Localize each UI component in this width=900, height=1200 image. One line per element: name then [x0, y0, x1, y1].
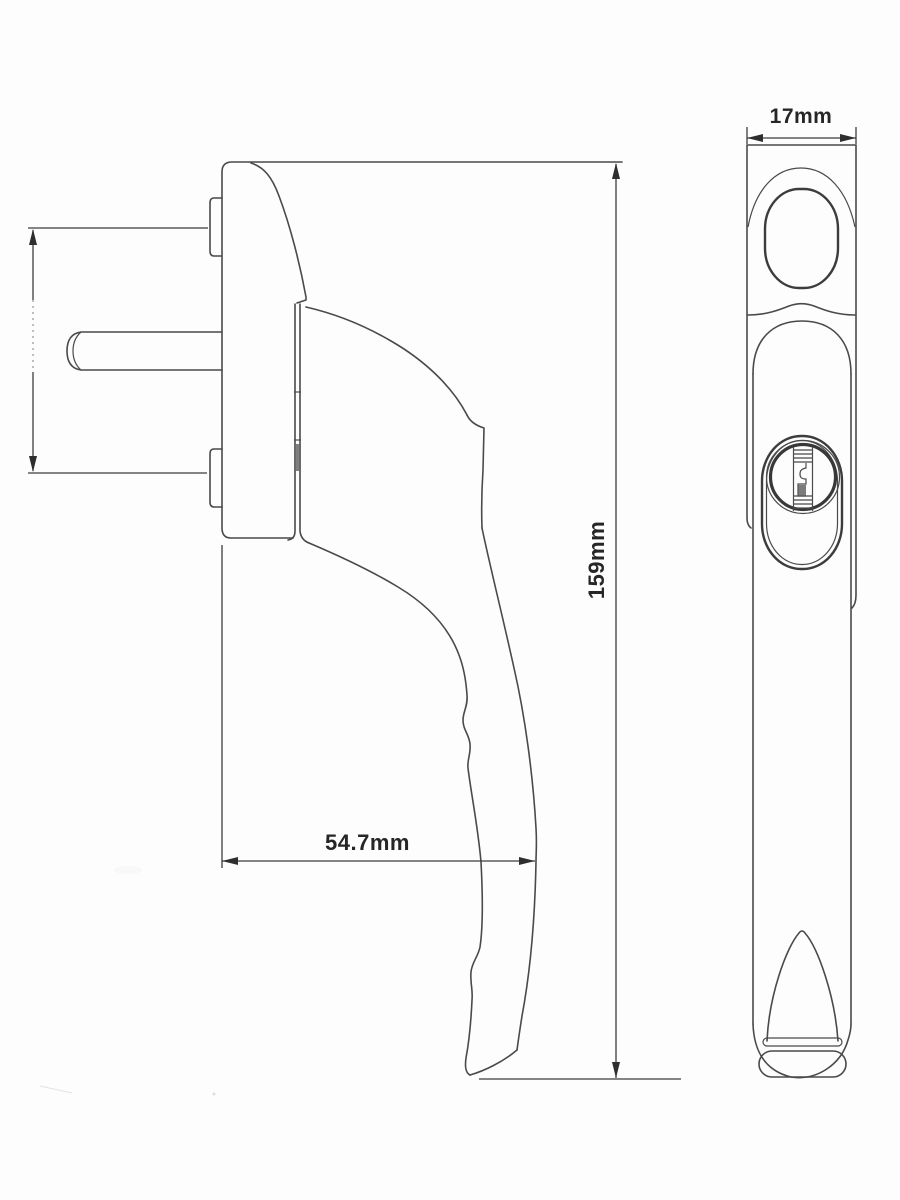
lever-rear-edge — [482, 528, 536, 1050]
teardrop-base-line — [763, 1038, 842, 1046]
lever-joint-line-right — [300, 304, 309, 543]
arrowhead-right — [519, 857, 535, 865]
head-left-edge — [747, 145, 751, 528]
dimension-label-depth: 54.7mm — [305, 830, 430, 856]
lever-front-edge — [309, 543, 482, 1075]
head-crown-arc — [748, 168, 855, 227]
spindle-end-cap — [73, 332, 81, 370]
arrowhead-up — [612, 163, 620, 179]
fixing-boss-bottom — [210, 449, 222, 507]
joint-dark-segment — [294, 444, 301, 471]
dimension-width — [747, 127, 856, 144]
head-lever-separation — [748, 304, 855, 315]
lever-thumb-step — [467, 415, 484, 528]
grip-teardrop — [767, 931, 838, 1041]
lever-shoulder-dome — [753, 321, 851, 374]
technical-drawing-canvas: 17mm 159mm 54.7mm — [0, 0, 900, 1200]
side-view — [67, 162, 622, 1075]
arrowhead-right — [840, 134, 856, 142]
dimension-height — [479, 163, 681, 1079]
arrowhead-left — [222, 857, 238, 865]
keyway-dark-step — [798, 485, 806, 496]
lock-cylinder-ring — [767, 441, 840, 514]
front-view — [747, 145, 856, 1078]
lever-bottom-edge — [470, 1050, 517, 1075]
lever-top-curve — [306, 307, 467, 415]
arrowhead-down — [29, 456, 37, 472]
spindle-boss-oval — [765, 189, 838, 288]
arrowhead-up — [29, 229, 37, 245]
dimension-label-height: 159mm — [585, 500, 609, 620]
arrowhead-left — [747, 134, 763, 142]
keyway — [794, 447, 813, 511]
spindle-shaft — [67, 332, 222, 370]
scan-artifacts — [40, 866, 216, 1096]
dimension-depth — [222, 545, 535, 868]
handle-neck-curve — [251, 163, 306, 303]
lever-joint-line-left — [288, 304, 295, 540]
head-right-edge — [852, 145, 856, 608]
backplate-outline — [222, 162, 622, 538]
dimension-fixing-centres — [28, 228, 208, 473]
handle-drawing-svg — [0, 0, 900, 1200]
fixing-boss-top — [210, 198, 222, 256]
dimension-label-width: 17mm — [756, 105, 846, 129]
arrowhead-down — [612, 1062, 620, 1078]
